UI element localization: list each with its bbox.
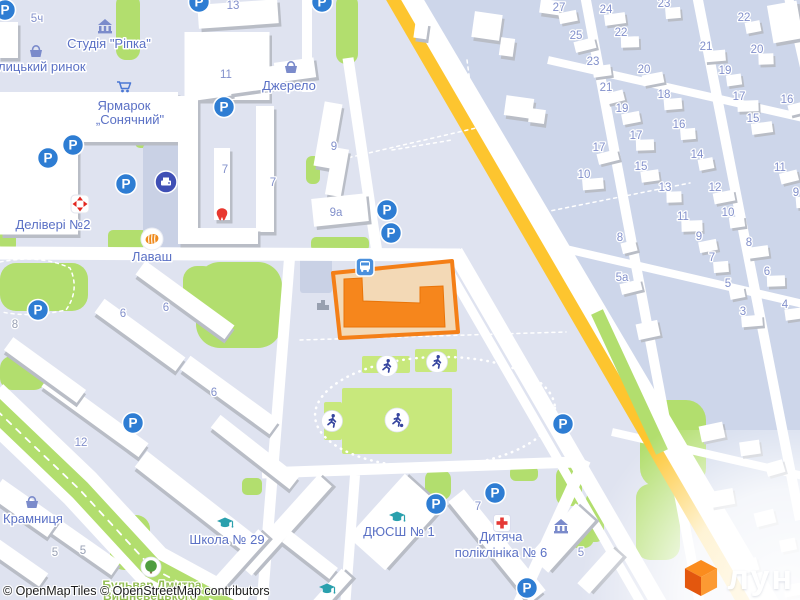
parking-letter: P [194, 0, 203, 10]
house-number-label: 19 [616, 103, 629, 115]
cap-icon-part [393, 517, 401, 522]
museum-icon-part [98, 31, 112, 33]
parking-letter: P [431, 497, 440, 512]
parking-letter: P [128, 416, 137, 431]
tree-icon-part [145, 560, 157, 572]
parking-lot-area [300, 257, 332, 293]
cap-icon-part [334, 592, 336, 594]
runner-icon [377, 356, 398, 377]
footballer-icon-part [400, 424, 403, 427]
cap-icon-part [232, 526, 234, 528]
house-number-label: 16 [673, 119, 686, 131]
parking-icon[interactable]: P [63, 135, 84, 156]
cart-icon-part [121, 90, 124, 93]
parking-letter: P [68, 138, 77, 153]
house-number-label: 11 [677, 211, 689, 223]
cap-icon-part [404, 520, 406, 522]
poi-label: ДЮСШ № 1 [363, 524, 435, 539]
parking-letter: P [121, 177, 130, 192]
attribution[interactable]: © OpenMapTiles © OpenStreetMap contribut… [3, 584, 270, 598]
house-number-label: 20 [751, 44, 764, 56]
parking-icon[interactable]: P [38, 148, 59, 169]
building-roof [499, 37, 515, 57]
house-number-label: 20 [638, 64, 651, 76]
poi-label: Джерело [262, 78, 316, 93]
building-roof [413, 21, 428, 40]
house-number-label: 13 [227, 0, 240, 12]
runner-icon-part [387, 359, 390, 362]
map-viewport[interactable]: PPPPPPPPPPPPPPPСтудія "Ріпка"Галицький р… [0, 0, 800, 600]
footballer-icon-part [397, 413, 400, 416]
basket-icon-part [30, 50, 42, 57]
parking-letter: P [43, 151, 52, 166]
house-number-label: 16 [781, 94, 794, 106]
poi-label: „Сонячний" [96, 112, 165, 127]
parking-icon[interactable]: P [0, 0, 16, 21]
house-number-label: 17 [733, 91, 746, 103]
house-number-label: 25 [570, 30, 583, 42]
poi-label: Ярмарок [98, 98, 151, 113]
building-roof [471, 11, 502, 41]
house-number-label: 23 [587, 56, 600, 68]
house-number-label: 7 [270, 177, 276, 189]
house-number-label: 6 [764, 266, 770, 278]
house-number-label: 6 [120, 308, 126, 320]
cart-icon-part [126, 90, 129, 93]
runner-icon [427, 352, 448, 373]
green-area [242, 478, 262, 495]
lun-cube-icon [684, 558, 718, 598]
poi-label: Дитяча [479, 529, 523, 544]
cap-icon-part [221, 523, 229, 528]
building [178, 96, 201, 248]
house-number-label: 7 [709, 252, 715, 264]
road [0, 253, 460, 255]
house-number-label: 10 [578, 169, 591, 181]
building [528, 108, 549, 128]
house-number-label: 17 [630, 130, 643, 142]
house-number-label: 6 [163, 302, 169, 314]
house-number-label: 5а [616, 272, 629, 284]
food-icon[interactable] [141, 228, 163, 250]
poi-label: Галицький ринок [0, 59, 86, 74]
house-number-label: 5 [52, 547, 58, 559]
house-number-label: 8 [617, 232, 623, 244]
green-area [336, 0, 358, 64]
parking-icon[interactable]: P [116, 174, 137, 195]
tree-icon [141, 557, 161, 577]
house-number-label: 9 [696, 231, 702, 243]
house-number-label: 22 [615, 27, 628, 39]
printer-icon-part [168, 182, 170, 184]
poi-label: Школа № 29 [189, 532, 264, 547]
green-area [116, 0, 140, 60]
parking-letter: P [386, 226, 395, 241]
poi-label: Студія "Ріпка" [67, 36, 151, 51]
parking-icon[interactable]: P [381, 223, 402, 244]
basket-icon-part [26, 501, 38, 508]
bus-stop-icon[interactable] [356, 258, 374, 276]
house-number-label: 27 [553, 2, 566, 14]
house-number-label: 5 [80, 545, 86, 557]
house-number-label: 24 [600, 4, 613, 16]
house-number-label: 9 [793, 187, 799, 199]
parking-letter: P [33, 303, 42, 318]
house-number-label: 5 [725, 278, 731, 290]
house-number-label: 17 [593, 142, 606, 154]
building [256, 106, 277, 236]
building [198, 228, 261, 248]
building-roof [256, 106, 274, 232]
printer-icon[interactable] [155, 171, 177, 193]
house-number-label: 23 [658, 0, 671, 10]
house-number-label: 14 [691, 149, 704, 161]
runner-icon-part [437, 355, 440, 358]
parking-letter: P [317, 0, 326, 10]
house-number-label: 4 [782, 299, 789, 311]
house-number-label: 21 [700, 41, 713, 53]
house-number-label: 9 [331, 141, 337, 153]
museum-icon-part [109, 26, 112, 31]
house-number-label: 11 [774, 162, 786, 174]
house-number-label: 15 [635, 161, 648, 173]
building-roof [198, 228, 258, 244]
parking-icon[interactable]: P [485, 483, 506, 504]
bus-icon-part [361, 263, 369, 266]
house-number-label: 7 [222, 164, 228, 176]
printer-icon-part [163, 178, 169, 182]
building-roof [0, 22, 18, 58]
building [413, 21, 431, 43]
poi-label: Лаваш [132, 249, 172, 264]
museum-icon-part [99, 26, 102, 31]
house-number-label: 8 [746, 237, 752, 249]
parking-letter: P [490, 486, 499, 501]
building [0, 22, 21, 62]
museum-icon-part [104, 26, 106, 31]
cross-icon-part [500, 518, 504, 529]
bus-icon-part [367, 270, 369, 272]
building-roof [528, 108, 546, 124]
cap-icon-part [323, 589, 331, 594]
house-number-label: 9а [330, 207, 343, 219]
house-number-label: 19 [719, 65, 732, 77]
house-number-label: 18 [658, 89, 671, 101]
building-roof [178, 96, 198, 244]
parking-icon[interactable]: P [377, 200, 398, 221]
bus-icon-part [361, 270, 363, 272]
basket-icon-part [285, 66, 297, 73]
building [471, 11, 505, 44]
house-number-label: 6 [211, 387, 217, 399]
poi-label: Делівері №2 [16, 217, 91, 232]
house-number-label: 8 [12, 319, 18, 331]
lun-logo-overlay: лун [520, 430, 800, 600]
building [498, 37, 517, 61]
delivery-icon[interactable] [71, 195, 89, 213]
parking-icon[interactable]: P [123, 413, 144, 434]
house-number-label: 10 [722, 207, 735, 219]
house-number-label: 21 [600, 82, 613, 94]
poi-label: Крамниця [3, 511, 63, 526]
house-number-label: 15 [747, 113, 760, 125]
house-number-label: 12 [75, 437, 88, 449]
parking-letter: P [0, 3, 9, 18]
parking-icon[interactable]: P [426, 494, 447, 515]
parking-icon[interactable]: P [214, 97, 235, 118]
lun-logo[interactable]: лун [684, 558, 794, 598]
house-number-label: 5ч [31, 13, 43, 25]
lun-logo-text: лун [727, 561, 794, 595]
house-number-label: 22 [738, 12, 751, 24]
parking-letter: P [219, 100, 228, 115]
parking-letter: P [382, 203, 391, 218]
footballer-icon [385, 408, 409, 432]
house-number-label: 3 [740, 306, 746, 318]
house-number-label: 7 [475, 501, 481, 513]
house-number-label: 11 [220, 69, 232, 81]
parking-icon[interactable]: P [28, 300, 49, 321]
runner-icon-part [332, 414, 335, 417]
house-number-label: 12 [709, 182, 722, 194]
runner-icon [322, 411, 343, 432]
house-roof [713, 261, 729, 273]
house-number-label: 13 [659, 182, 672, 194]
